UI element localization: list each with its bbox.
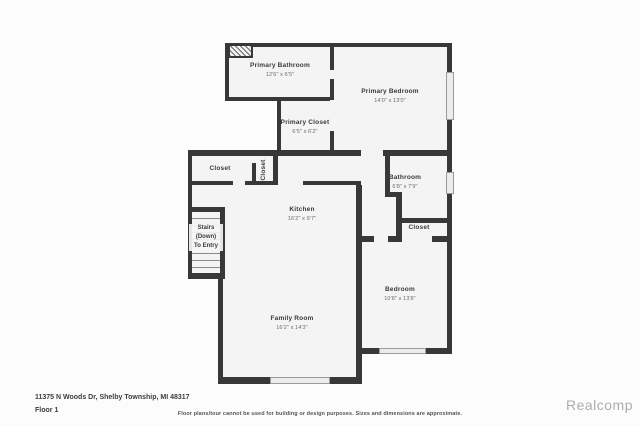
wall-segment — [330, 79, 334, 100]
wall-segment — [432, 236, 452, 242]
wall-segment — [252, 163, 256, 185]
disclaimer-text: Floor plans/tour cannot be used for buil… — [0, 411, 640, 417]
stairs-line3: To Entry — [189, 242, 223, 251]
room-label-primary-bathroom: Primary Bathroom 12'6" x 6'5" — [230, 62, 330, 79]
room-label-primary-bedroom: Primary Bedroom 14'0" x 13'0" — [335, 88, 445, 105]
stairs-line2: (Down) — [189, 233, 223, 242]
room-dims: 6'8" x 7'9" — [365, 184, 445, 191]
room-dims: 16'2" x 9'7" — [252, 216, 352, 223]
stairs-line1: Stairs — [189, 224, 223, 233]
wall-segment — [330, 43, 334, 70]
window-marker — [379, 348, 426, 354]
wall-segment — [388, 236, 398, 242]
room-dims: 10'8" x 13'8" — [350, 296, 450, 303]
room-name: Closet — [260, 150, 269, 190]
wall-segment — [356, 185, 362, 384]
room-name: Bedroom — [350, 286, 450, 295]
wall-segment — [225, 43, 452, 47]
wall-segment — [383, 150, 452, 156]
room-dims: 14'0" x 13'0" — [335, 98, 445, 105]
room-name: Primary Bedroom — [335, 88, 445, 97]
room-name: Bathroom — [365, 174, 445, 183]
room-label-closet-vertical: Closet — [260, 150, 270, 190]
wall-segment — [303, 181, 361, 185]
room-dims: 12'6" x 6'5" — [230, 72, 330, 79]
window-marker — [446, 172, 454, 194]
room-name: Closet — [190, 165, 250, 174]
room-dims: 16'2" x 14'3" — [242, 325, 342, 332]
window-marker — [270, 377, 330, 384]
wall-segment — [273, 152, 278, 185]
room-label-family-room: Family Room 16'2" x 14'3" — [242, 315, 342, 332]
room-name: Primary Closet — [255, 119, 355, 128]
property-address: 11375 N Woods Dr, Shelby Township, MI 48… — [35, 394, 190, 401]
room-name: Family Room — [242, 315, 342, 324]
wall-segment — [188, 273, 225, 279]
room-label-closet-bedroom: Closet — [389, 224, 449, 233]
room-name: Primary Bathroom — [230, 62, 330, 71]
room-label-stairs: Stairs (Down) To Entry — [189, 224, 223, 251]
room-name: Kitchen — [252, 206, 352, 215]
room-label-closet-hall: Closet — [190, 165, 250, 174]
window-marker — [446, 72, 454, 120]
realcomp-logo: Realcomp — [566, 397, 633, 413]
wall-segment — [188, 181, 233, 185]
room-name: Closet — [389, 224, 449, 233]
room-label-bedroom: Bedroom 10'8" x 13'8" — [350, 286, 450, 303]
room-label-bathroom: Bathroom 6'8" x 7'9" — [365, 174, 445, 191]
wall-segment — [396, 218, 450, 223]
wall-segment — [218, 273, 223, 384]
hatched-area — [228, 44, 253, 58]
room-label-kitchen: Kitchen 16'2" x 9'7" — [252, 206, 352, 223]
wall-segment — [357, 236, 374, 242]
room-label-primary-closet: Primary Closet 6'5" x 6'2" — [255, 119, 355, 136]
room-dims: 6'5" x 6'2" — [255, 129, 355, 136]
